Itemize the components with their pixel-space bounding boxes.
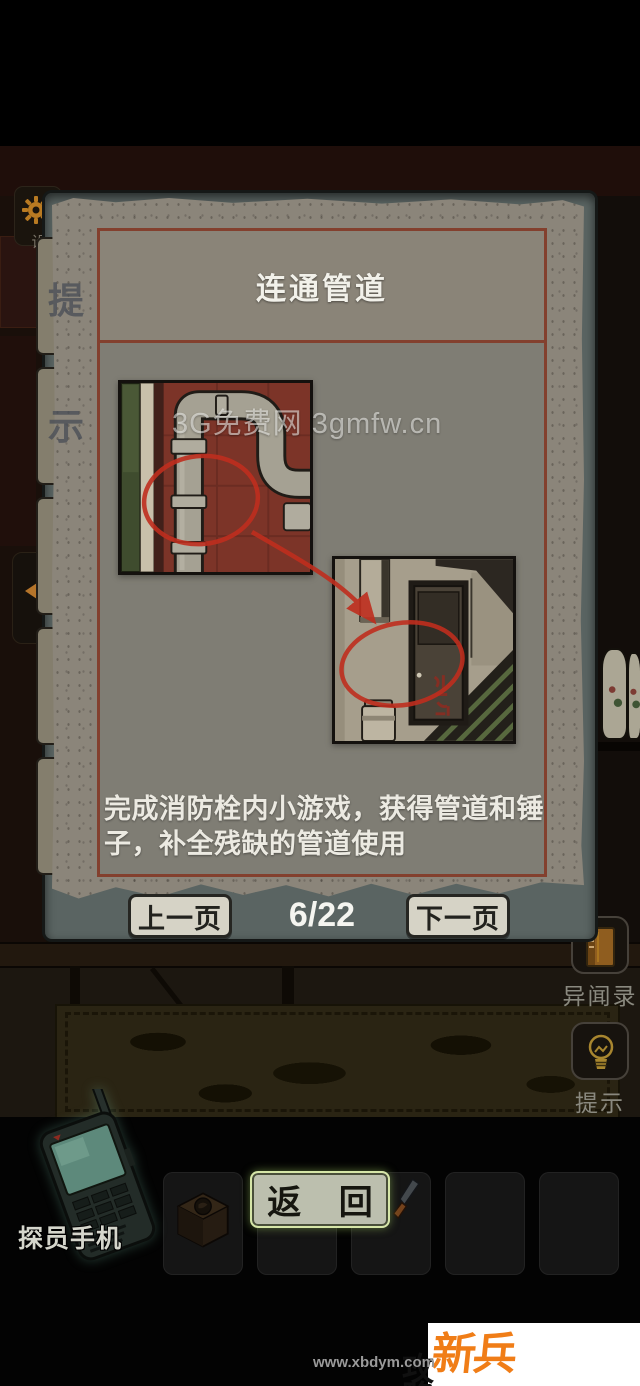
return-button[interactable]: 返 回: [250, 1171, 390, 1228]
light-bulb-icon: [581, 1031, 621, 1073]
footer-watermark: 新兵 攻略网 www.xbdym.com: [428, 1323, 640, 1386]
tab-label-ti: 提: [46, 272, 86, 324]
inventory-slot-4[interactable]: [445, 1172, 525, 1275]
wall-ornament: [0, 336, 36, 546]
game-screen: 设 异闻录 提示 提 示 连通管道: [0, 0, 640, 1386]
inline-watermark: 3G免费网 3gmfw.cn: [172, 400, 492, 442]
hint-button-label: 提示: [566, 1084, 634, 1118]
hint-button[interactable]: [571, 1022, 629, 1080]
door-scene-image: [335, 559, 513, 741]
records-label: 异闻录: [552, 977, 640, 1011]
vase: [601, 648, 628, 740]
hint-description: 完成消防栓内小游戏，获得管道和锤子，补全残缺的管道使用: [104, 792, 546, 862]
knife-icon: [391, 1176, 427, 1224]
table-edge: [0, 942, 640, 968]
next-page-button[interactable]: 下一页: [406, 894, 510, 938]
brand-logo-primary: 新兵: [430, 1333, 517, 1377]
background-shelf: [594, 196, 640, 944]
page-title: 连通管道: [100, 231, 544, 340]
brand-url: www.xbdym.com: [313, 1355, 435, 1370]
tab-label-shi: 示: [46, 398, 86, 450]
page-indicator: 6/22: [258, 896, 386, 935]
shelf-edge: [596, 742, 640, 751]
screenshot-door-scene: [332, 556, 516, 744]
vase: [627, 652, 640, 740]
phone-label: 探员手机: [18, 1219, 148, 1255]
prev-page-button[interactable]: 上一页: [128, 894, 232, 938]
panel-title-box: 连通管道: [97, 228, 547, 343]
inventory-slot-5[interactable]: [539, 1172, 619, 1275]
